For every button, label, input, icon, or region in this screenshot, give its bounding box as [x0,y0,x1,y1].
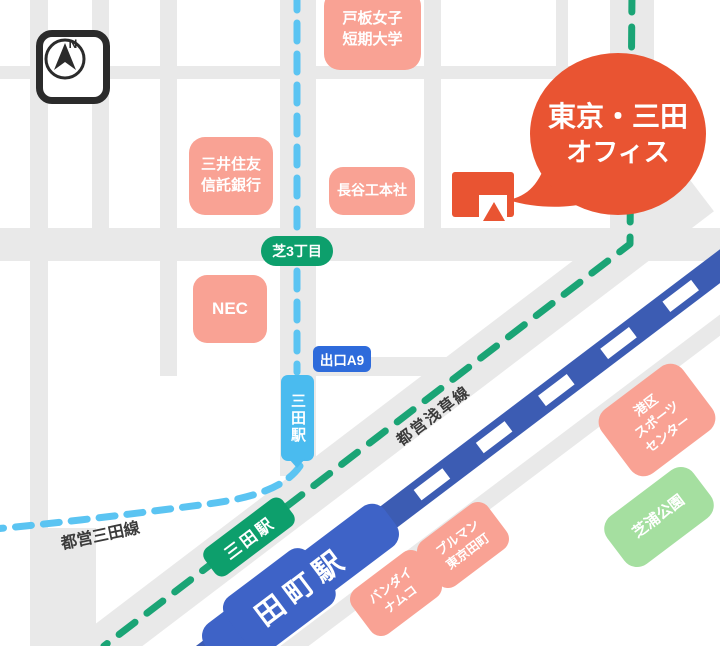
tag-shiba-3chome: 芝3丁目 [261,236,333,266]
poi-label: 戸板女子 [342,9,402,30]
poi-nec: NEC [193,275,267,343]
poi-label: 長谷工本社 [337,181,407,200]
station-mita-subway: 三田駅 [281,375,314,461]
tag-label: 出口A9 [320,349,364,369]
poi-toita-college: 戸板女子 短期大学 [324,0,421,70]
tag-label: 芝3丁目 [272,241,322,261]
station-mita-subway-pointer [289,459,305,468]
poi-label: 三井住友 [201,155,261,176]
office-name-line1: 東京・三田 [548,98,688,136]
poi-label: 短期大学 [342,30,402,51]
poi-smbc-trust-bank: 三井住友 信託銀行 [189,137,273,215]
office-name-line2: オフィス [566,136,669,170]
poi-haseko-hq: 長谷工本社 [329,167,415,215]
compass-rose: N [36,30,110,104]
compass-needle-icon [43,37,87,81]
poi-label: 芝浦公園 [629,491,689,544]
office-entrance-arrow-icon [483,202,505,221]
poi-label: NEC [212,297,248,320]
office-callout-bubble: 東京・三田 オフィス [530,53,706,215]
access-map: N 戸板女子 短期大学 三井住友 信託銀行 長谷工本社 NEC 港区 スポーツ … [0,0,720,646]
tag-exit-a9: 出口A9 [313,346,371,372]
poi-label: 信託銀行 [201,176,261,197]
